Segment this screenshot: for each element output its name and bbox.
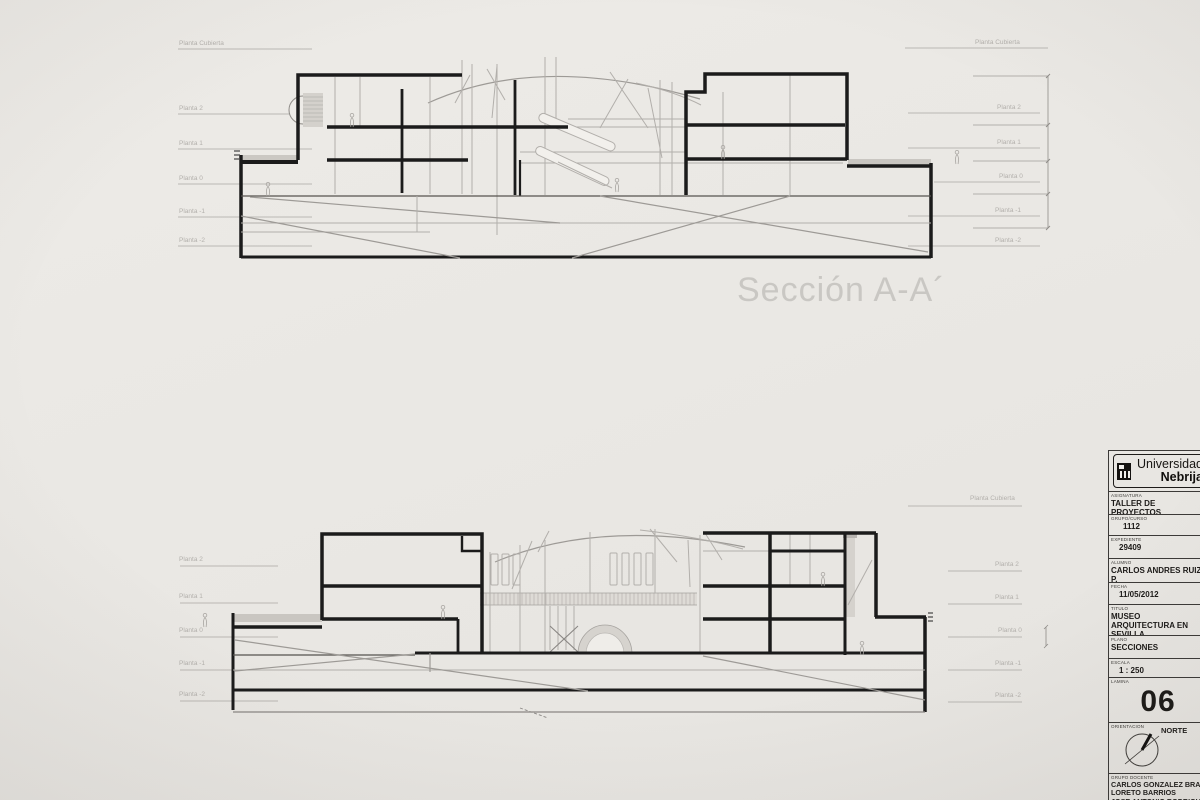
level-label: Planta -2 — [995, 237, 1021, 244]
level-label: Planta -1 — [995, 207, 1021, 214]
level-label: Planta 1 — [995, 594, 1019, 601]
level-label: Planta 0 — [179, 175, 203, 182]
level-label: Planta 2 — [995, 561, 1019, 568]
section-bb-roof-arch — [495, 529, 745, 589]
north-label: NORTE — [1161, 726, 1187, 735]
field-value: 1 : 250 — [1109, 666, 1200, 675]
level-label: Planta 0 — [179, 627, 203, 634]
section-aa: Planta Cubierta Planta 2 Planta 1 Planta… — [178, 39, 1050, 309]
section-aa-plinth — [241, 196, 931, 258]
field-asignatura: ASIGNATURA TALLER DE PROYECTOS — [1109, 491, 1200, 514]
level-label: Planta 1 — [997, 139, 1021, 146]
level-label: Planta -1 — [179, 660, 205, 667]
level-label: Planta 2 — [179, 556, 203, 563]
field-value: CARLOS ANDRES RUIZ P. — [1109, 566, 1200, 583]
field-value: 1112 — [1109, 522, 1200, 531]
level-label: Planta Cubierta — [975, 39, 1020, 46]
field-plano: PLANO SECCIONES — [1109, 635, 1200, 658]
level-label: Planta 2 — [179, 105, 203, 112]
nebrija-logo-icon — [1117, 463, 1131, 480]
nebrija-logo: Universidad Nebrija — [1113, 454, 1200, 488]
level-label: Planta 0 — [999, 173, 1023, 180]
section-aa-levels-left: Planta Cubierta Planta 2 Planta 1 Planta… — [178, 40, 312, 246]
level-label: Planta -2 — [179, 237, 205, 244]
level-label: Planta -1 — [179, 208, 205, 215]
sheet-number: 06 — [1109, 685, 1200, 719]
sections-drawing: Planta Cubierta Planta 2 Planta 1 Planta… — [0, 0, 1200, 800]
level-label: Planta Cubierta — [179, 40, 224, 47]
logo-nebrija-text: Nebrija — [1134, 471, 1200, 484]
level-label: Planta 2 — [997, 104, 1021, 111]
level-label: Planta 1 — [179, 593, 203, 600]
level-label: Planta -2 — [179, 691, 205, 698]
section-bb-plinth — [233, 640, 925, 718]
section-aa-escalators — [534, 112, 616, 188]
section-aa-columns — [335, 57, 843, 235]
section-aa-levels-right: Planta Cubierta Planta 2 Planta 1 Planta… — [905, 39, 1050, 246]
level-label: Planta -2 — [995, 692, 1021, 699]
architectural-sheet: Planta Cubierta Planta 2 Planta 1 Planta… — [0, 0, 1200, 800]
field-grupo-docente: GRUPO DOCENTE CARLOS GONZALEZ BRAVO LORE… — [1109, 773, 1200, 800]
section-bb-levels-right: Planta Cubierta Planta 2 Planta 1 Planta… — [908, 495, 1048, 702]
field-grupo-curso: GRUPO/CURSO 1112 — [1109, 514, 1200, 535]
field-alumno: ALUMNO CARLOS ANDRES RUIZ P. — [1109, 558, 1200, 582]
field-value: SECCIONES — [1109, 643, 1200, 652]
level-label: Planta 1 — [179, 140, 203, 147]
field-expediente: EXPEDIENTE 29409 — [1109, 535, 1200, 558]
field-orientacion: ORIENTACION NORTE — [1109, 722, 1200, 773]
field-fecha: FECHA 11/05/2012 — [1109, 582, 1200, 604]
field-value: MUSEO ARQUITECTURA EN SEVILLA — [1109, 612, 1197, 636]
section-bb-facade — [490, 529, 872, 653]
section-bb-cut-walls — [232, 533, 933, 712]
field-value: 11/05/2012 — [1109, 590, 1200, 599]
field-value: TALLER DE PROYECTOS — [1109, 499, 1200, 515]
level-label: Planta 0 — [998, 627, 1022, 634]
section-aa-gray-fills — [243, 93, 931, 166]
field-escala: ESCALA 1 : 250 — [1109, 658, 1200, 677]
north-compass-icon — [1121, 726, 1165, 770]
section-bb: Planta 2 Planta 1 Planta 0 Planta -1 Pla… — [179, 495, 1048, 718]
level-label: Planta -1 — [995, 660, 1021, 667]
section-aa-caption: Sección A-A´ — [737, 271, 946, 309]
level-label: Planta Cubierta — [970, 495, 1015, 502]
titleblock: Universidad Nebrija ASIGNATURA TALLER DE… — [1108, 450, 1200, 800]
field-titulo: TITULO MUSEO ARQUITECTURA EN SEVILLA — [1109, 604, 1200, 635]
field-value: 29409 — [1109, 543, 1200, 552]
field-lamina: LAMINA 06 — [1109, 677, 1200, 722]
